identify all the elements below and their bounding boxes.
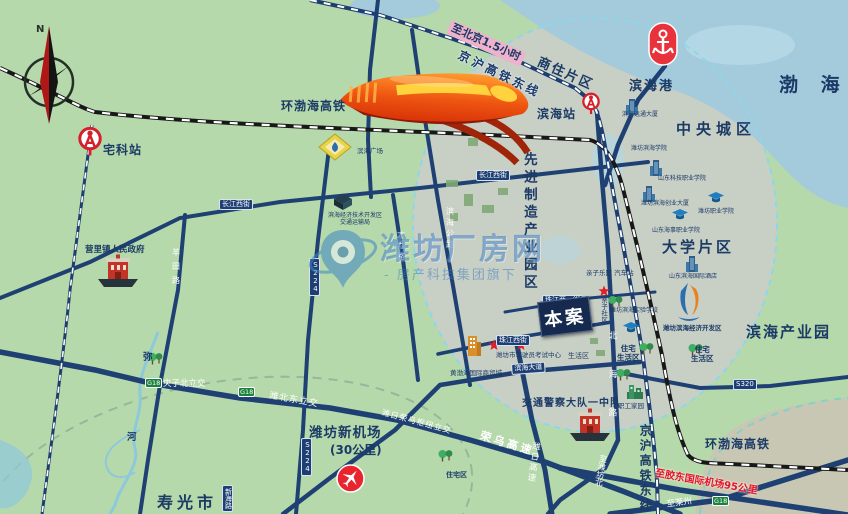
binhai-exp-school-label: 潍坊滨海实验学校 (610, 307, 658, 314)
residential-life-area-label-2: 住宅 生活区 (691, 346, 714, 364)
beihai-road-label: 北海路 (607, 331, 617, 447)
changjiang-west-st-sign-1: 长江西街 (219, 199, 253, 210)
huanbohai-hsr-label-west: 环渤海高铁 (281, 99, 346, 113)
binhai-port-label: 滨海港 (629, 79, 674, 94)
central-city-label: 中央城区 (676, 121, 756, 139)
weibei-east-junction-label: 潍北东立交 (268, 391, 319, 410)
s224-sign-south: S224 (301, 438, 312, 476)
zhujiang-west-st-sign: 珠江西街 (496, 335, 530, 346)
huanbohai-hsr-label-east: 环渤海高铁 (705, 437, 770, 451)
shouguang-city-label: 寿光市 (157, 494, 217, 513)
jinghu-hsr-label-vertical: 京沪高铁东线 (638, 424, 652, 514)
weifang-voc-college-label: 潍坊职业学院 (698, 208, 734, 215)
g18-badge-southeast: G18 (712, 496, 729, 506)
transport-bureau-label: 滨海经济技术开发区 交通运输局 (326, 212, 384, 226)
s224-sign-north: S224 (309, 258, 320, 296)
airport-label: 潍坊新机场 (309, 426, 382, 442)
binhai-intl-hotel-label: 山东滨海国际酒店 (669, 273, 717, 280)
weifang-binhai-college-label: 潍坊滨海学院 (631, 145, 667, 152)
xinhai-road-sign: 新海路 (222, 485, 233, 512)
s320-sign: S320 (733, 379, 757, 390)
weiri-rongwu-junction-label: 潍日荣乌枢纽立交 (381, 408, 453, 436)
shandong-tech-college-label: 山东科技职业学院 (658, 175, 706, 182)
qinzi-community-label: 亲子社区 (599, 297, 607, 323)
project-site-marker: 本案 (537, 296, 593, 337)
residence-area-label: 住宅区 (446, 471, 467, 479)
binhai-plaza-label: 滨海广场 (357, 148, 383, 156)
g18-badge-mid: G18 (145, 378, 162, 388)
binhai-station-label: 滨海站 (537, 107, 576, 121)
binhai-yuantong-bldg-label: 滨海远通大厦 (622, 111, 658, 118)
to-weifang-north-label: 至潍坊北 (593, 454, 608, 487)
airport-distance-label: (30公里) (330, 443, 382, 457)
binhai-devzone-label: 潍坊滨海经济开发区 (663, 325, 722, 333)
dajiu-road-label: 大九路 (396, 230, 405, 263)
yingli-govt-label: 营里镇人民政府 (85, 245, 145, 255)
zhigong-home-label: 职工家园 (618, 403, 644, 411)
mi-river-char-1: 弥 (143, 352, 153, 363)
sea-label: 渤 海 (779, 74, 848, 96)
traffic-police-label: 交通警察大队一中队 (522, 398, 621, 410)
advanced-manufacturing-label: 先进制造产业园区 (520, 152, 536, 292)
binhai-chuangye-bldg-label: 潍坊滨海创业大厦 (641, 200, 689, 207)
compass-north-label: N (36, 24, 44, 36)
commercial-residential-label: 商住片区 (535, 55, 596, 93)
residential-life-area-label-1: 住宅 生活区 (617, 345, 640, 363)
rongwu-expressway-label: 荣乌高速 (478, 430, 535, 459)
g18-badge-west: G18 (238, 387, 255, 397)
to-laizhou-label: 至莱州 (666, 496, 693, 509)
label-layer: 渤 海中央城区大学片区滨海产业园商住片区先进制造产业园区滨海港寿光市潍坊新机场(… (0, 0, 848, 514)
binhai-highway-label: 滨海公路 (445, 207, 454, 251)
life-area-label: 生活区 (568, 352, 589, 360)
exam-center-label: 潍坊市驾驶员考试中心 (496, 352, 561, 360)
mi-river-char-2: 河 (127, 432, 137, 443)
changjiang-west-st-sign-2: 长江西街 (476, 170, 510, 181)
zhaike-station-label: 宅科站 (103, 143, 142, 157)
binhai-industry-park-label: 滨海产业园 (746, 324, 831, 342)
to-jiaodong-airport-label: 至胶东国际机场95公里 (654, 468, 758, 498)
qinzi-park-bus-label: 亲子乐园 汽车站 (586, 270, 634, 278)
binhai-avenue-sign: 滨海大道 (511, 362, 546, 376)
huangbohai-mall-label: 黄渤海国际商贸城 (450, 370, 502, 378)
shandong-maritime-college-label: 山东海事职业学院 (652, 227, 700, 234)
yangzi-north-junction-label: 央子北立交 (163, 379, 206, 389)
yangtian-road-label: 羊田路 (171, 248, 180, 290)
map: 渤 海中央城区大学片区滨海产业园商住片区先进制造产业园区滨海港寿光市潍坊新机场(… (0, 0, 848, 514)
university-area-label: 大学片区 (662, 239, 734, 257)
